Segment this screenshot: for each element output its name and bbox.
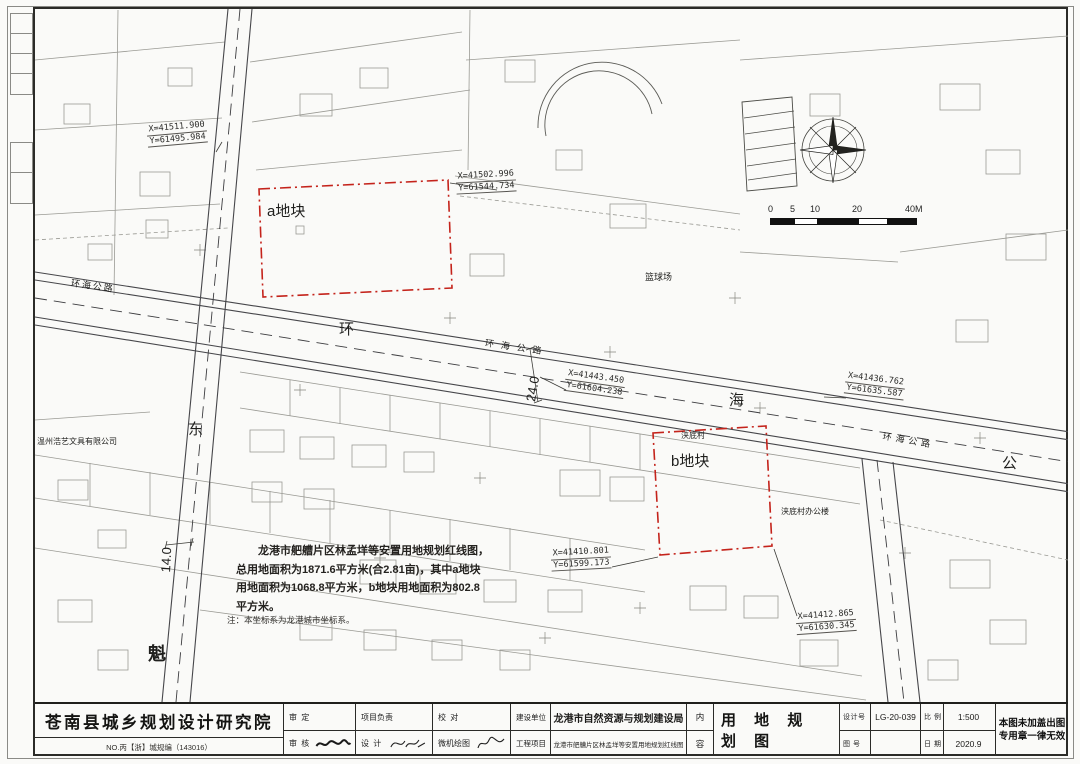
client-value: 龙港市自然资源与规划建设局 (551, 710, 686, 725)
content-cell: 内 容 (686, 704, 713, 756)
title-block: 苍南县城乡规划设计研究院 NO.丙【浙】城规编（143016） 审 定 审 核 … (35, 702, 1068, 756)
signature-scribble (312, 736, 355, 752)
design-label: 设 计 (356, 738, 382, 749)
scale-tick: 20 (852, 204, 862, 214)
project-lead-label: 项目负责 (356, 712, 393, 723)
dimension-lines (165, 347, 542, 549)
seal-note-line1: 本图未加盖出图 (999, 717, 1066, 730)
scale-bar: 0 5 10 20 40M (768, 204, 928, 232)
road-char-dong: 东 (188, 418, 203, 439)
road-char-hai: 海 (729, 389, 744, 410)
drawing-title: 用 地 规 划 图 (714, 704, 839, 756)
scale-tick: 0 (768, 204, 773, 214)
approve-label: 审 定 (284, 712, 310, 723)
plot-a-label: a地块 (267, 200, 305, 221)
design-no-value: LG-20-039 (870, 704, 920, 730)
village-office-label: 浃底村办公楼 (781, 506, 829, 517)
signature-scribble (472, 735, 510, 753)
coordinate-callout: X=41502.996 Y=61544.734 (455, 168, 516, 194)
plot-b-label: b地块 (671, 450, 709, 471)
seal-note-line2: 专用章一律无效 (999, 730, 1066, 743)
scale-value: 1:500 (943, 704, 993, 730)
institute-name: 苍南县城乡规划设计研究院 (35, 704, 283, 737)
institute-cell: 苍南县城乡规划设计研究院 NO.丙【浙】城规编（143016） (35, 704, 283, 756)
coordinate-callout: X=41412.865 Y=61630.345 (795, 608, 857, 635)
basketball-court-label: 篮球场 (645, 270, 672, 283)
cad-label: 微机绘图 (433, 738, 470, 749)
note-line: 龙港市舥艚片区林孟垟等安置用地规划红线图， (236, 542, 510, 561)
seal-note-cell: 本图未加盖出图 专用章一律无效 (995, 704, 1068, 756)
scale-bar-segments (770, 218, 917, 225)
numbers-cell: 设计号 LG-20-039 比 例 1:500 图 号 日 期 2020.9 (839, 704, 995, 756)
project-label: 工程项目 (511, 731, 551, 756)
curved-road-arcs (538, 62, 662, 136)
project-value: 龙港市舥艚片区林孟垟等安置用地规划红线图 (551, 739, 686, 749)
hatched-building (742, 97, 797, 191)
date-label: 日 期 (920, 731, 943, 756)
compass-rose-icon (800, 117, 866, 183)
proof-cad-cell: 校 对 微机绘图 (432, 704, 510, 756)
review-label: 审 核 (284, 738, 310, 749)
road-centerlines (35, 9, 1070, 702)
scale-tick: 10 (810, 204, 820, 214)
institute-license: NO.丙【浙】城规编（143016） (35, 737, 283, 756)
road-char-gong: 公 (1002, 452, 1017, 473)
scale-tick: 5 (790, 204, 795, 214)
content-label-bottom: 容 (687, 738, 713, 750)
village-label: 浃底村 (681, 430, 705, 441)
client-project-cell: 建设单位 龙港市自然资源与规划建设局 工程项目 龙港市舥艚片区林孟垟等安置用地规… (510, 704, 686, 756)
scale-label: 比 例 (920, 704, 943, 730)
note-line: 总用地面积为1871.6平方米(合2.81亩)，其中a地块 (236, 561, 510, 580)
date-value: 2020.9 (943, 731, 993, 756)
road-char-kui: 魁 (148, 640, 166, 666)
planning-note: 龙港市舥艚片区林孟垟等安置用地规划红线图， 总用地面积为1871.6平方米(合2… (236, 542, 510, 616)
parcel-lines (35, 10, 1068, 700)
road-width-side: 14.0 (158, 547, 174, 573)
plot-a-boundary (259, 180, 452, 297)
sheet-no-value (870, 731, 920, 756)
note-line: 用地面积为1068.8平方米，b地块用地面积为802.8 (236, 579, 510, 598)
approve-review-cell: 审 定 审 核 (283, 704, 355, 756)
sheet-no-label: 图 号 (840, 739, 870, 749)
content-label-top: 内 (687, 711, 713, 723)
red-plot-boundaries (259, 180, 772, 555)
coordinate-system-note: 注：本坐标系为龙港城市坐标系。 (227, 614, 355, 626)
planning-drawing-sheet: a地块 b地块 环 海 公 东 魁 24.0 14.0 环海公路 环海公路 环海… (0, 0, 1080, 764)
coordinate-callout: X=41410.801 Y=61599.173 (550, 545, 611, 571)
lead-design-cell: 项目负责 设 计 (355, 704, 432, 756)
company-label: 温州浩艺文具有限公司 (37, 436, 117, 447)
road-edges (35, 9, 1070, 702)
road-char-huan: 环 (339, 318, 354, 339)
drawing-title-cell: 用 地 规 划 图 (713, 704, 839, 756)
scale-tick: 40M (905, 204, 923, 214)
signature-scribble (384, 735, 432, 753)
design-no-label: 设计号 (840, 712, 870, 722)
proof-label: 校 对 (433, 712, 459, 723)
client-label: 建设单位 (511, 704, 551, 730)
